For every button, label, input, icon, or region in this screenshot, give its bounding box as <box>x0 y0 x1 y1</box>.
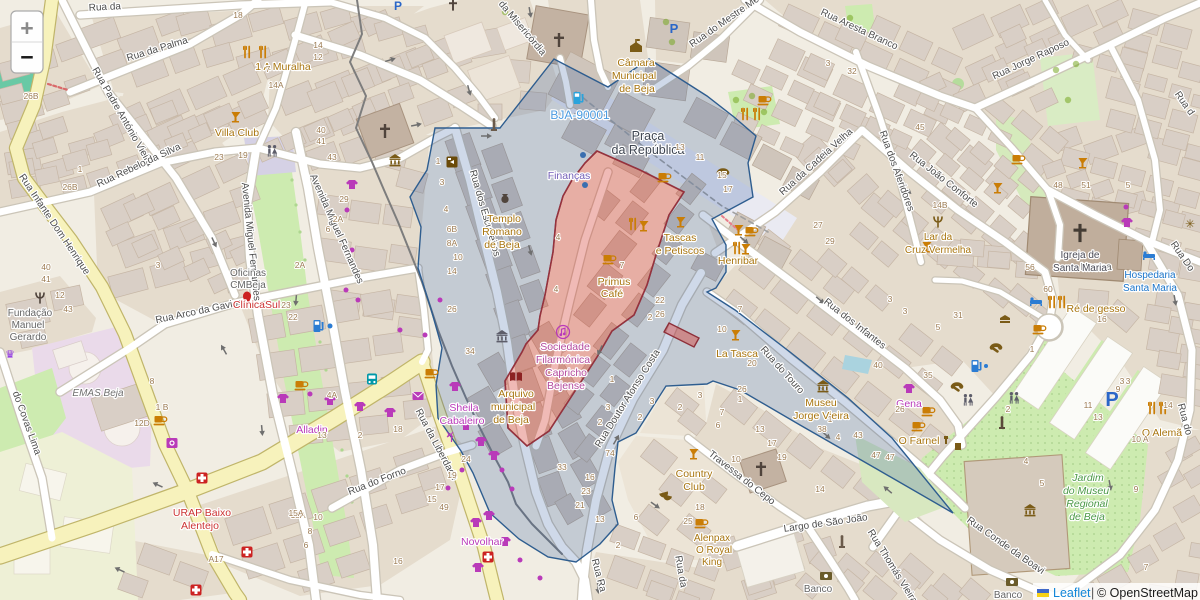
svg-text:Bejense: Bejense <box>547 380 585 392</box>
svg-text:Oficinas: Oficinas <box>230 268 266 279</box>
svg-text:19: 19 <box>447 470 457 480</box>
svg-text:EMAS Beja: EMAS Beja <box>72 388 124 399</box>
svg-text:Regional: Regional <box>1066 498 1108 510</box>
svg-text:26B: 26B <box>62 182 77 192</box>
svg-text:17: 17 <box>723 184 733 194</box>
svg-text:10 A: 10 A <box>1131 434 1148 444</box>
svg-text:4: 4 <box>836 432 841 442</box>
svg-text:26: 26 <box>737 384 747 394</box>
svg-text:23: 23 <box>281 300 291 310</box>
svg-text:King: King <box>702 557 722 568</box>
svg-text:Rua da: Rua da <box>88 1 121 14</box>
svg-text:2: 2 <box>598 417 603 427</box>
svg-text:Praça: Praça <box>632 129 665 143</box>
svg-text:Manuel: Manuel <box>12 320 45 331</box>
svg-text:14: 14 <box>447 266 457 276</box>
svg-text:Câmara: Câmara <box>617 57 655 69</box>
svg-text:♛: ♛ <box>5 349 15 361</box>
svg-text:municipal: municipal <box>491 401 535 413</box>
svg-text:10: 10 <box>313 512 323 522</box>
svg-text:Sociedade: Sociedade <box>540 341 590 353</box>
svg-text:7: 7 <box>720 407 725 417</box>
svg-text:CMBeja: CMBeja <box>230 280 266 291</box>
svg-text:Cabaleiro: Cabaleiro <box>440 415 485 427</box>
svg-text:Banco: Banco <box>994 590 1023 600</box>
svg-text:26: 26 <box>655 309 665 319</box>
svg-text:Templo: Templo <box>487 213 521 225</box>
svg-text:3: 3 <box>440 177 445 187</box>
svg-text:20: 20 <box>747 358 757 368</box>
svg-text:40: 40 <box>316 125 326 135</box>
svg-text:5: 5 <box>1126 180 1131 190</box>
svg-text:21: 21 <box>575 500 585 510</box>
svg-text:4: 4 <box>556 232 561 242</box>
svg-text:27: 27 <box>813 220 823 230</box>
svg-text:8: 8 <box>150 376 155 386</box>
svg-text:2: 2 <box>358 430 363 440</box>
svg-text:2: 2 <box>648 312 653 322</box>
svg-text:|: | <box>1091 586 1094 600</box>
svg-text:26: 26 <box>447 304 457 314</box>
svg-text:13: 13 <box>595 514 605 524</box>
svg-text:31: 31 <box>953 310 963 320</box>
svg-text:Capricho: Capricho <box>545 367 587 379</box>
svg-text:1: 1 <box>1030 344 1035 354</box>
svg-text:de Beja: de Beja <box>484 239 520 251</box>
svg-text:47: 47 <box>885 452 895 462</box>
svg-text:1 B: 1 B <box>156 402 169 412</box>
svg-text:1 A Muralha: 1 A Muralha <box>255 61 311 73</box>
svg-text:6B: 6B <box>447 224 458 234</box>
svg-text:10: 10 <box>717 324 727 334</box>
svg-text:4A: 4A <box>327 390 338 400</box>
svg-text:51: 51 <box>1081 180 1091 190</box>
svg-text:26B: 26B <box>23 91 38 101</box>
svg-text:7: 7 <box>266 64 271 74</box>
svg-text:Hospedaria: Hospedaria <box>1124 270 1176 281</box>
svg-text:de Beja: de Beja <box>493 414 529 426</box>
svg-text:23: 23 <box>214 152 224 162</box>
svg-text:3: 3 <box>826 58 831 68</box>
svg-text:10: 10 <box>453 252 463 262</box>
svg-text:43: 43 <box>63 304 73 314</box>
svg-text:Igreja de: Igreja de <box>1061 250 1100 261</box>
svg-text:11: 11 <box>696 152 705 162</box>
svg-text:29: 29 <box>825 236 835 246</box>
svg-text:12: 12 <box>55 290 65 300</box>
svg-text:14B: 14B <box>932 200 947 210</box>
svg-text:38: 38 <box>817 424 827 434</box>
svg-text:24: 24 <box>461 454 471 464</box>
svg-text:4: 4 <box>1024 456 1029 466</box>
svg-text:41: 41 <box>316 136 326 146</box>
svg-text:Arquivo: Arquivo <box>498 388 534 400</box>
svg-text:25: 25 <box>683 516 693 526</box>
svg-text:13: 13 <box>1093 412 1103 422</box>
svg-text:26: 26 <box>895 404 905 414</box>
svg-text:14: 14 <box>313 40 323 50</box>
svg-text:18: 18 <box>393 424 403 434</box>
svg-text:© OpenStreetMap: © OpenStreetMap <box>1097 586 1198 600</box>
svg-text:7: 7 <box>1144 562 1149 572</box>
svg-text:Municipal: Municipal <box>612 70 656 82</box>
svg-text:4: 4 <box>444 204 449 214</box>
svg-text:O Royal: O Royal <box>696 545 732 556</box>
svg-text:1: 1 <box>610 374 615 384</box>
svg-text:56: 56 <box>1025 262 1035 272</box>
svg-text:3: 3 <box>606 402 611 412</box>
svg-text:Ré de gesso: Ré de gesso <box>1067 303 1126 315</box>
svg-text:16: 16 <box>1097 314 1107 324</box>
svg-text:22: 22 <box>655 295 665 305</box>
svg-text:1: 1 <box>738 394 743 404</box>
svg-text:15A: 15A <box>288 508 303 518</box>
svg-text:18: 18 <box>695 502 705 512</box>
svg-text:19: 19 <box>777 452 787 462</box>
svg-text:Finanças: Finanças <box>548 170 591 182</box>
svg-text:16: 16 <box>393 556 403 566</box>
svg-text:3: 3 <box>1126 376 1131 386</box>
svg-text:32: 32 <box>847 66 857 76</box>
svg-text:2: 2 <box>638 412 643 422</box>
svg-text:60: 60 <box>1043 284 1053 294</box>
svg-text:A17: A17 <box>208 554 223 564</box>
svg-text:de Beja: de Beja <box>1069 511 1105 523</box>
svg-text:15: 15 <box>427 494 437 504</box>
svg-text:17: 17 <box>767 438 777 448</box>
svg-text:8: 8 <box>308 526 313 536</box>
svg-text:3: 3 <box>903 306 908 316</box>
svg-text:10: 10 <box>731 454 741 464</box>
svg-text:✳: ✳ <box>1185 217 1195 231</box>
svg-text:Gerardo: Gerardo <box>10 332 47 343</box>
svg-text:Leaflet: Leaflet <box>1053 586 1091 600</box>
svg-text:Santa Maria: Santa Maria <box>1123 283 1177 294</box>
svg-text:3: 3 <box>1120 376 1125 386</box>
svg-text:6: 6 <box>304 540 309 550</box>
svg-text:3: 3 <box>888 294 893 304</box>
svg-text:e Petiscos: e Petiscos <box>656 245 704 257</box>
svg-text:+: + <box>20 15 33 41</box>
svg-text:URAP Baixo: URAP Baixo <box>173 507 231 519</box>
svg-text:6: 6 <box>326 224 331 234</box>
svg-text:49: 49 <box>439 502 449 512</box>
svg-text:Sheila: Sheila <box>449 402 478 414</box>
svg-text:1: 1 <box>828 414 833 424</box>
svg-text:Villa Club: Villa Club <box>215 127 259 139</box>
svg-text:Filarmónica: Filarmónica <box>536 354 590 366</box>
svg-text:3: 3 <box>698 390 703 400</box>
svg-text:11: 11 <box>1084 400 1093 410</box>
svg-text:13: 13 <box>755 424 765 434</box>
svg-text:4: 4 <box>554 284 559 294</box>
svg-text:23: 23 <box>581 486 591 496</box>
svg-text:2: 2 <box>616 540 621 550</box>
svg-text:Club: Club <box>683 481 705 493</box>
svg-text:35: 35 <box>923 370 933 380</box>
svg-text:15: 15 <box>717 170 727 180</box>
svg-text:19: 19 <box>238 150 248 160</box>
svg-text:2A: 2A <box>333 214 344 224</box>
svg-text:29: 29 <box>339 194 349 204</box>
svg-text:BJA-90001: BJA-90001 <box>550 108 610 122</box>
svg-text:Jardim: Jardim <box>1071 472 1104 484</box>
svg-text:2A: 2A <box>295 260 306 270</box>
svg-text:40: 40 <box>41 262 51 272</box>
svg-text:33: 33 <box>557 462 567 472</box>
svg-text:Primus: Primus <box>598 276 631 288</box>
svg-text:Henribar: Henribar <box>718 255 759 267</box>
svg-text:1: 1 <box>78 164 83 174</box>
svg-text:Alentejo: Alentejo <box>181 520 219 532</box>
svg-text:12: 12 <box>313 52 323 62</box>
svg-text:13: 13 <box>317 430 327 440</box>
svg-text:74: 74 <box>605 448 615 458</box>
svg-text:14: 14 <box>815 484 825 494</box>
svg-text:Banco: Banco <box>804 584 833 595</box>
svg-text:41: 41 <box>41 274 51 284</box>
svg-text:7: 7 <box>620 260 625 270</box>
svg-text:Country: Country <box>676 468 714 480</box>
svg-text:43: 43 <box>853 430 863 440</box>
svg-text:P: P <box>670 21 679 36</box>
svg-text:3: 3 <box>650 396 655 406</box>
svg-text:43: 43 <box>327 152 337 162</box>
svg-text:Fundação: Fundação <box>8 308 53 319</box>
svg-text:Lar da: Lar da <box>924 232 953 243</box>
svg-text:45: 45 <box>915 122 925 132</box>
svg-text:Novolhar: Novolhar <box>461 536 504 548</box>
svg-text:40: 40 <box>873 360 883 370</box>
svg-text:da República: da República <box>612 143 685 157</box>
svg-text:34: 34 <box>465 346 475 356</box>
svg-text:6: 6 <box>716 420 721 430</box>
svg-text:47: 47 <box>871 450 881 460</box>
svg-text:14: 14 <box>1163 400 1173 410</box>
svg-text:2: 2 <box>1006 404 1011 414</box>
svg-text:6: 6 <box>634 512 639 522</box>
svg-text:2: 2 <box>678 402 683 412</box>
svg-text:7: 7 <box>738 304 743 314</box>
svg-text:Tascas: Tascas <box>664 232 697 244</box>
svg-text:Jorge Vieira: Jorge Vieira <box>793 410 849 422</box>
svg-text:3: 3 <box>156 260 161 270</box>
svg-text:16: 16 <box>585 472 595 482</box>
svg-text:Santa Maria: Santa Maria <box>1053 263 1107 274</box>
svg-text:17: 17 <box>435 482 445 492</box>
svg-text:Museu: Museu <box>805 397 837 409</box>
svg-text:22: 22 <box>288 312 298 322</box>
svg-text:ClínicaSul.: ClínicaSul. <box>233 299 283 311</box>
svg-text:−: − <box>20 44 33 70</box>
svg-text:5: 5 <box>1040 478 1045 488</box>
svg-text:1: 1 <box>436 156 441 166</box>
svg-text:5: 5 <box>936 322 941 332</box>
svg-text:12D: 12D <box>134 418 150 428</box>
svg-text:P: P <box>394 0 402 13</box>
svg-text:48: 48 <box>1053 180 1063 190</box>
svg-text:do Museu: do Museu <box>1063 485 1109 497</box>
svg-text:14A: 14A <box>268 80 283 90</box>
svg-text:de Beja: de Beja <box>619 83 655 95</box>
svg-text:Café: Café <box>601 288 623 300</box>
svg-text:Romano: Romano <box>482 226 522 238</box>
svg-text:9: 9 <box>1134 484 1139 494</box>
svg-text:13: 13 <box>675 142 685 152</box>
svg-text:O Farnel: O Farnel <box>899 435 940 447</box>
svg-text:8A: 8A <box>447 238 458 248</box>
svg-text:Alenpax: Alenpax <box>694 533 730 544</box>
svg-text:Cruz Vermelha: Cruz Vermelha <box>905 245 972 256</box>
svg-text:18: 18 <box>233 10 243 20</box>
